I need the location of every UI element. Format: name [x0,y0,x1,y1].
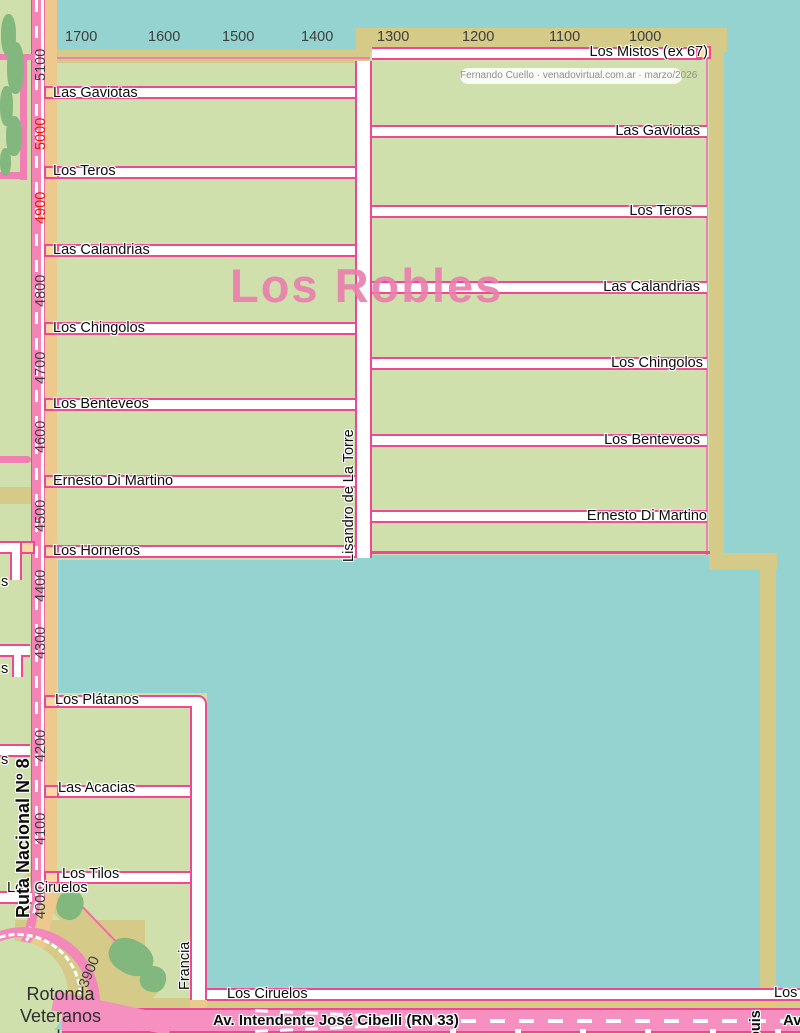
south-block-stub [580,1029,586,1033]
label-av-partial-right: Av. [783,1013,800,1029]
west-jog-street-2v [12,655,23,677]
label-los-platanos: Los Plátanos [55,692,139,708]
label-las-gaviotas-west: Las Gaviotas [53,85,138,101]
label-rotonda-line3: de [8,1027,113,1033]
label-los-teros-east: Los Teros [629,203,692,219]
road-top-band-pink-line [33,57,370,59]
axis-top-1600: 1600 [148,29,180,45]
label-las-acacias: Las Acacias [58,780,135,796]
label-ernesto-di-martino-west: Ernesto Di Martino [53,473,173,489]
south-block-stub [710,1029,716,1033]
axis-left-5100: 5100 [33,49,49,81]
south-block-stub [450,1029,456,1033]
axis-top-1300: 1300 [377,29,409,45]
label-avenue-cibelli: Av. Intendente José Cibelli (RN 33) [213,1013,459,1029]
attribution: Fernando Cuello · venadovirtual.com.ar ·… [460,68,682,84]
south-block-stub [645,1029,651,1033]
axis-left-4600: 4600 [33,421,49,453]
axis-left-4400: 4400 [33,570,49,602]
axis-left-4800: 4800 [33,275,49,307]
label-lisandro-de-la-torre: Lisandro de La Torre [341,429,357,562]
label-las-gaviotas-east: Las Gaviotas [615,123,700,139]
west-jog-street-1v [10,552,22,580]
axis-top-1200: 1200 [462,29,494,45]
east-blocks-edge-line [706,45,708,555]
west-jog-stub [20,541,35,554]
label-los-chingolos-east: Los Chingolos [611,355,703,371]
road-east-vertical [709,28,724,570]
axis-left-5000: 5000 [33,118,49,150]
label-ruta-nacional-8: Ruta Nacional Nº 8 [13,758,33,918]
label-edge-cut-vertical: puis [748,1010,764,1033]
west-road-h3 [0,456,31,463]
label-las-calandrias-west: Las Calandrias [53,242,150,258]
axis-left-4100: 4100 [33,813,49,845]
label-los-benteveos-west: Los Benteveos [53,396,149,412]
label-ernesto-di-martino-east: Ernesto Di Martino [587,508,707,524]
south-block-stub [775,1029,781,1033]
tree-icon [7,42,24,94]
axis-top-1500: 1500 [222,29,254,45]
label-los-horneros-west: Los Horneros [53,543,140,559]
label-edge-cut-street-1: s [1,574,8,590]
label-los-benteveos-east: Los Benteveos [604,432,700,448]
map-title: Los Robles [230,258,503,313]
axis-top-1100: 1100 [549,29,580,45]
south-block-stub [515,1029,521,1033]
axis-top-1000: 1000 [629,29,661,45]
label-rotonda-line2: Veteranos [8,1006,113,1028]
label-edge-cut-street-3: s [1,752,8,768]
label-las-calandrias-east: Las Calandrias [603,279,700,295]
avenue-dash-center [432,1019,800,1023]
label-los-mistos-east: Los Mistos (ex 67) [590,44,708,60]
axis-left-4700: 4700 [33,352,49,384]
label-los-teros-west: Los Teros [53,163,116,179]
map-canvas[interactable]: 1700 1600 1500 1400 1300 1200 1100 1000 … [0,0,800,1033]
axis-left-4900: 4900 [33,192,49,224]
label-los-partial-right: Los [774,985,797,1001]
stub-las-acacias [44,785,59,798]
label-edge-cut-street-2: s [1,661,8,677]
label-los-ciruelos-south: Los Ciruelos [227,986,308,1002]
label-francia: Francia [177,942,193,990]
axis-top-1400: 1400 [301,29,333,45]
street-platanos-francia-corner [192,695,207,712]
tree-icon [0,148,11,176]
label-rotonda-line1: Rotonda [8,984,113,1006]
road-east-vertical-lower [760,568,776,992]
axis-top-1700: 1700 [65,29,97,45]
east-blocks-bottom-border [370,551,710,554]
axis-left-4500: 4500 [33,500,49,532]
axis-left-4300: 4300 [33,627,49,659]
label-rotonda: Rotonda Veteranos de [8,984,113,1033]
axis-left-4200: 4200 [33,730,49,762]
label-los-chingolos-west: Los Chingolos [53,320,145,336]
